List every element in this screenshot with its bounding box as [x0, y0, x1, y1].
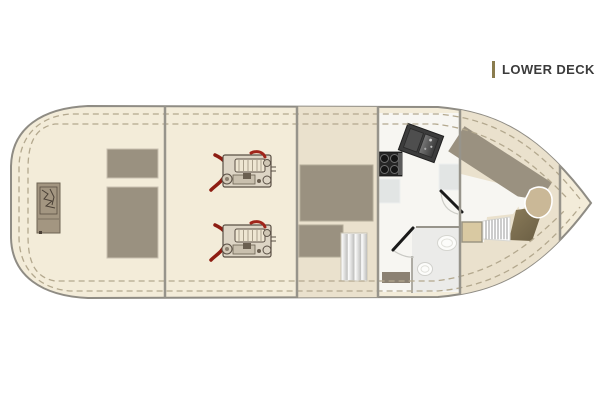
berth-foot — [299, 225, 343, 257]
head-sink-icon — [438, 236, 457, 251]
deck-label-text: LOWER DECK — [502, 62, 595, 77]
helm-seat — [525, 187, 552, 218]
counter — [379, 179, 400, 203]
deck-label: LOWER DECK — [492, 61, 595, 78]
berth-main — [300, 165, 373, 221]
table-hatch — [462, 222, 482, 242]
counter-2 — [439, 164, 459, 190]
floor-plan-drawing — [0, 0, 600, 400]
generator-unit — [37, 183, 60, 234]
stove-4-burner-icon — [378, 152, 402, 176]
stern-locker-large — [107, 187, 158, 258]
accent-bar — [492, 61, 495, 78]
companionway-stairs — [341, 233, 367, 281]
vanity-step — [382, 272, 410, 283]
boat-floor-plan-page: LOWER DECK — [0, 0, 600, 400]
stern-locker-small — [107, 149, 158, 178]
forward-ladder — [483, 217, 510, 241]
toilet-icon — [418, 263, 433, 276]
